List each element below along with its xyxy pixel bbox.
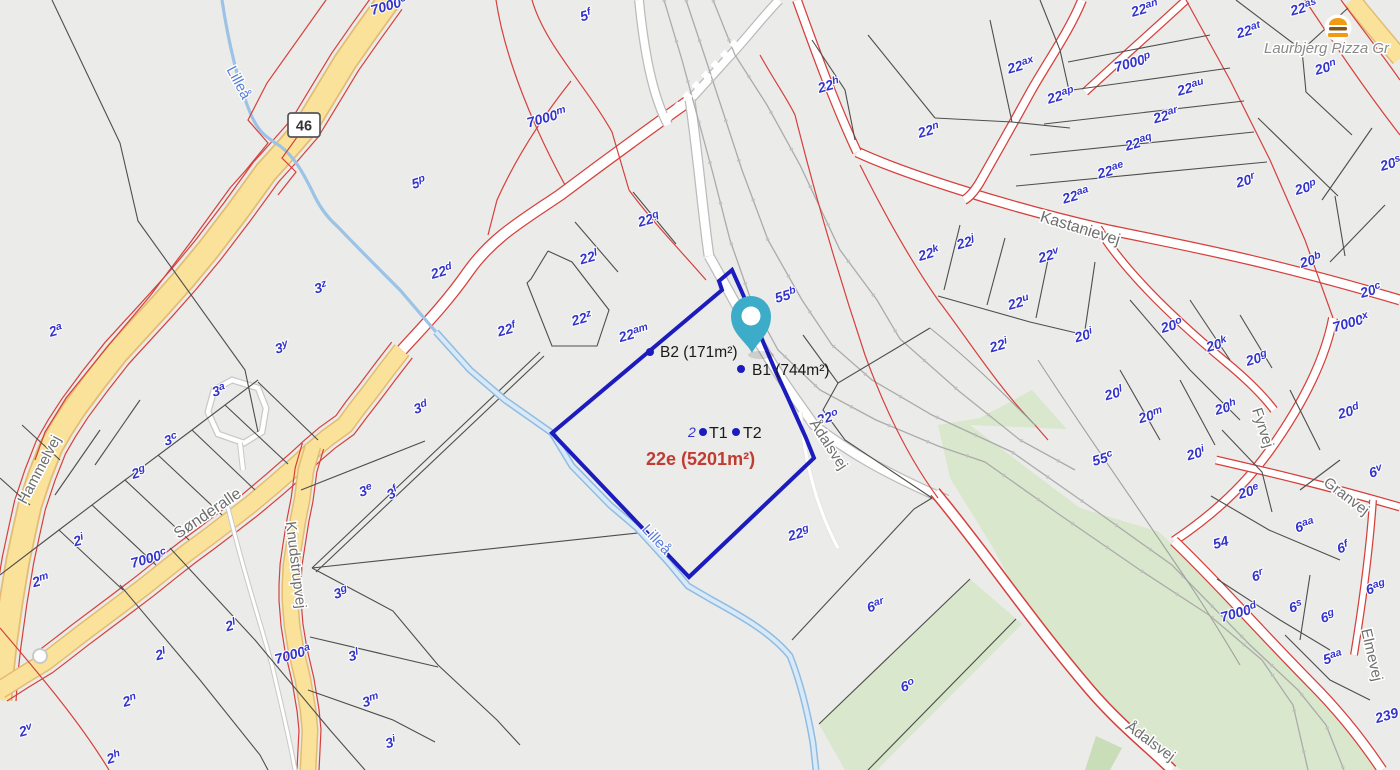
svg-text:2: 2 [687, 424, 696, 440]
svg-text:22e (5201m²): 22e (5201m²) [646, 449, 755, 469]
svg-text:B1 (744m²): B1 (744m²) [752, 362, 830, 379]
svg-text:T2: T2 [743, 425, 762, 442]
svg-text:T1: T1 [709, 425, 728, 442]
svg-text:B2 (171m²): B2 (171m²) [660, 344, 738, 361]
svg-text:46: 46 [296, 119, 312, 135]
svg-text:Laurbjerg Pizza Gr: Laurbjerg Pizza Gr [1264, 40, 1390, 57]
